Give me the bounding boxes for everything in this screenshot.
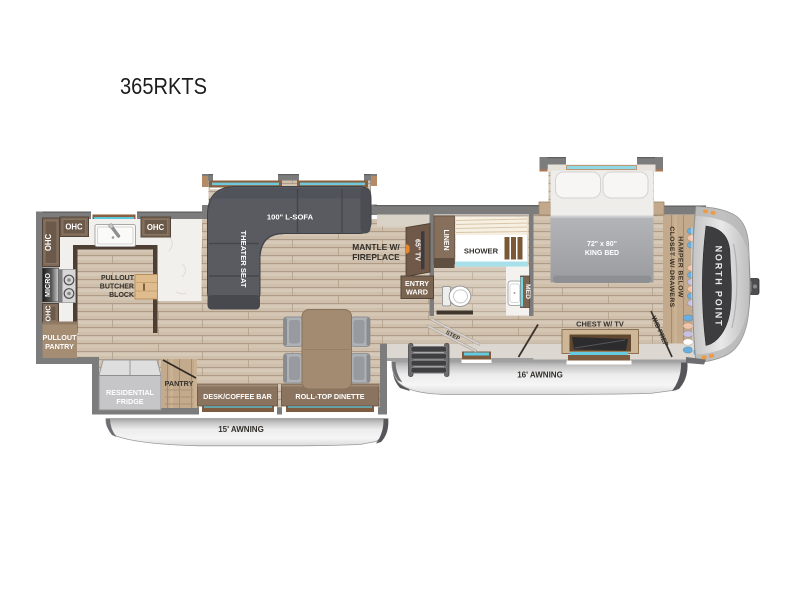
svg-text:BLOCK: BLOCK <box>109 292 134 299</box>
svg-text:THEATER SEAT: THEATER SEAT <box>239 230 248 287</box>
svg-text:PANTRY: PANTRY <box>165 379 194 388</box>
svg-text:SHOWER: SHOWER <box>464 247 499 256</box>
svg-text:BUTCHER: BUTCHER <box>100 284 134 291</box>
svg-text:CHEST W/ TV: CHEST W/ TV <box>576 320 624 329</box>
svg-text:OHC: OHC <box>44 233 53 251</box>
svg-text:100" L-SOFA: 100" L-SOFA <box>267 213 314 222</box>
svg-text:OHC: OHC <box>65 223 83 232</box>
svg-text:OHC: OHC <box>44 306 53 322</box>
svg-text:CLOSET W/ DRAWERS: CLOSET W/ DRAWERS <box>668 226 675 307</box>
svg-text:HAMPER BELOW: HAMPER BELOW <box>677 236 684 298</box>
svg-text:MANTLE W/: MANTLE W/ <box>352 242 400 252</box>
svg-text:ROLL-TOP DINETTE: ROLL-TOP DINETTE <box>295 392 364 401</box>
svg-text:FRIDGE: FRIDGE <box>116 397 143 406</box>
svg-text:RESIDENTIAL: RESIDENTIAL <box>106 388 155 397</box>
svg-text:NORTH POINT: NORTH POINT <box>714 246 724 328</box>
svg-text:16' AWNING: 16' AWNING <box>517 371 563 380</box>
svg-text:PULLOUT: PULLOUT <box>101 275 135 282</box>
svg-text:KING BED: KING BED <box>585 250 619 257</box>
svg-text:WARD: WARD <box>406 288 428 297</box>
svg-text:MICRO: MICRO <box>43 273 52 297</box>
svg-text:MED: MED <box>524 284 531 299</box>
svg-text:OHC: OHC <box>147 223 165 232</box>
svg-text:DESK/COFFEE BAR: DESK/COFFEE BAR <box>203 392 272 401</box>
svg-text:FIREPLACE: FIREPLACE <box>352 252 400 262</box>
svg-text:PANTRY: PANTRY <box>45 342 74 351</box>
svg-text:365RKTS: 365RKTS <box>120 73 207 99</box>
svg-text:15' AWNING: 15' AWNING <box>218 425 264 434</box>
svg-text:65" TV: 65" TV <box>414 239 421 261</box>
svg-text:PULLOUT: PULLOUT <box>43 333 78 342</box>
svg-text:LINEN: LINEN <box>442 230 449 251</box>
svg-text:72" x 80": 72" x 80" <box>587 241 617 248</box>
